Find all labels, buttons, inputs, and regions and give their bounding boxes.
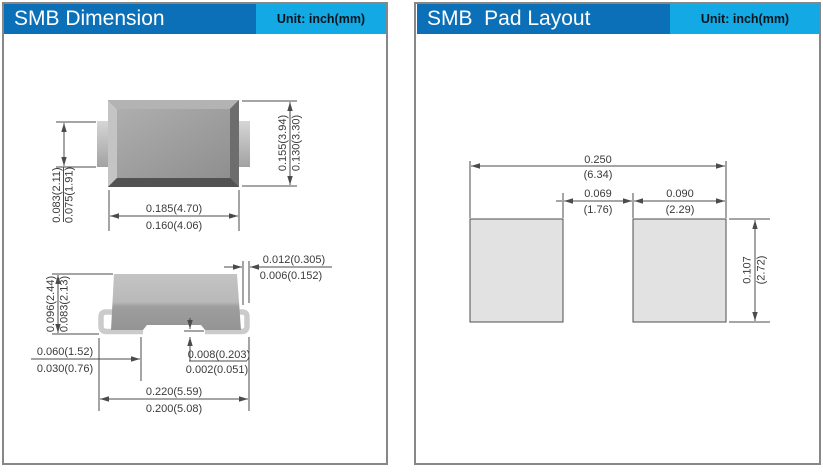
dim-text: 0.160(4.06) xyxy=(146,220,202,232)
page: SMB Dimension Unit: inch(mm) SMB Pad Lay… xyxy=(0,0,823,472)
body-top-face xyxy=(117,109,230,178)
dim-lead-width: 0.083(2.11) 0.075(1.91) xyxy=(51,122,96,223)
dim-text: (2.72) xyxy=(756,256,768,285)
dim-text: 0.220(5.59) xyxy=(146,386,202,398)
dim-text: 0.107 xyxy=(742,256,754,284)
dim-pad-gap: 0.069 (1.76) xyxy=(556,188,633,218)
package-top-view xyxy=(97,100,250,187)
body-bevel-top xyxy=(108,100,239,109)
dim-text: 0.030(0.76) xyxy=(37,363,93,375)
body-bevel-left xyxy=(108,100,117,187)
drawing-overlay: 0.083(2.11) 0.075(1.91) 0.155(3.94) 0.13… xyxy=(0,0,823,472)
dim-text: 0.130(3.30) xyxy=(291,115,303,171)
body-side-profile xyxy=(111,274,241,330)
body-bevel-bottom xyxy=(108,178,239,187)
dim-body-height: 0.155(3.94) 0.130(3.30) xyxy=(242,101,303,186)
dim-text: 0.012(0.305) xyxy=(263,254,325,266)
body-bevel-right xyxy=(230,100,239,187)
dim-text: 0.083(2.11) xyxy=(51,167,63,222)
package-side-view xyxy=(101,274,247,332)
dim-text: 0.200(5.08) xyxy=(146,403,202,415)
dim-text: 0.075(1.91) xyxy=(64,167,76,223)
left-pad xyxy=(470,219,563,322)
dim-text: 0.096(2.44) xyxy=(45,276,57,332)
dim-text: 0.008(0.203) xyxy=(188,349,250,361)
right-pad xyxy=(633,219,726,322)
dim-text: 0.250 xyxy=(584,154,612,166)
dim-text: 0.069 xyxy=(584,188,612,200)
left-lead-tab xyxy=(97,121,108,167)
dim-body-width: 0.185(4.70) 0.160(4.06) xyxy=(109,190,239,232)
dim-text: 0.185(4.70) xyxy=(146,203,202,215)
dim-lead-length: 0.060(1.52) 0.030(0.76) xyxy=(31,337,141,381)
dim-pad-height: 0.107 (2.72) xyxy=(729,219,770,322)
dim-lead-thickness: 0.012(0.305) 0.006(0.152) xyxy=(224,254,332,305)
dim-text: 0.090 xyxy=(666,188,694,200)
dim-text: 0.060(1.52) xyxy=(37,346,93,358)
pad-layout-drawing xyxy=(470,219,726,322)
right-lead-tab xyxy=(239,121,250,167)
dim-text: (2.29) xyxy=(666,204,695,216)
dim-text: (6.34) xyxy=(584,169,613,181)
dim-pad-width: 0.090 (2.29) xyxy=(634,188,725,216)
dim-text: 0.155(3.94) xyxy=(277,115,289,171)
dim-text: (1.76) xyxy=(584,204,613,216)
dim-text: 0.002(0.051) xyxy=(186,364,248,376)
dim-text: 0.006(0.152) xyxy=(260,270,322,282)
dim-text: 0.083(2.13) xyxy=(59,276,71,332)
